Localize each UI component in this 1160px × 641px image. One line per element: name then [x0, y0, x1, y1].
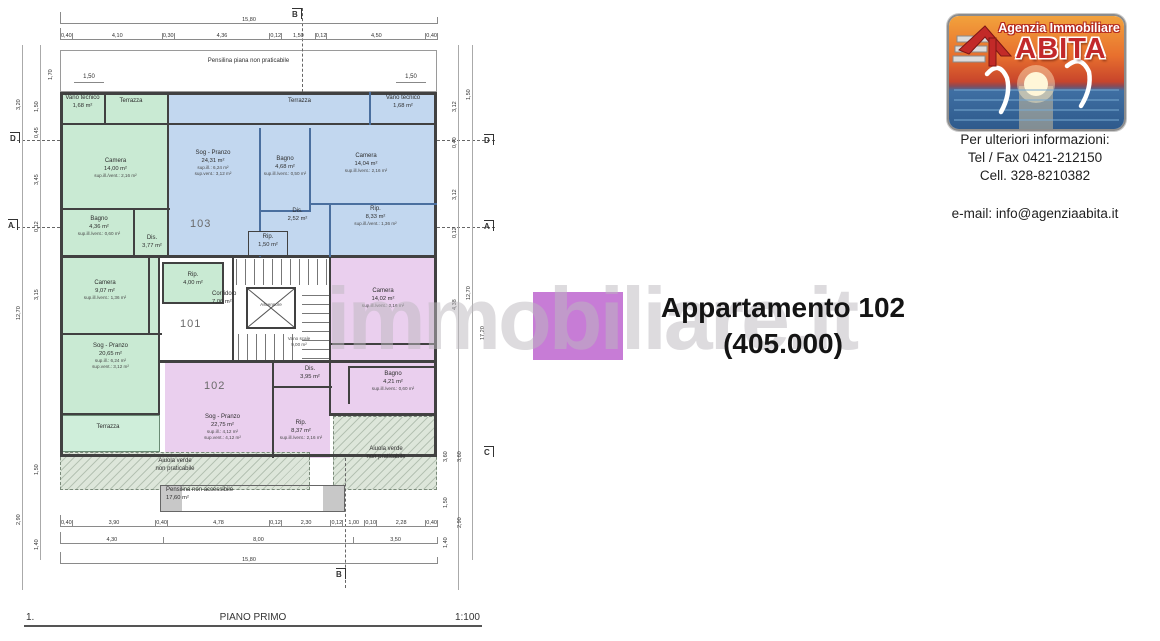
room-bagno-103: Bagno4,68 m²sup.ill./vent.: 0,50 m²: [260, 156, 310, 177]
room-camera2-101: Camera9,07 m²sup.ill./vent.: 1,36 m²: [64, 280, 146, 301]
room-terrazza-103: Terrazza: [262, 98, 337, 106]
apartment-number-102: 102: [204, 380, 225, 392]
dimension-row-top: 0,40 4,10 0,30 4,36 0,12 1,50 0,12 4,50 …: [60, 28, 438, 40]
room-soggiorno-102: Sog - Pranzo22,75 m²sup.ill.: 4,12 m²sup…: [170, 414, 275, 441]
room-dis-101: Dis.3,77 m²: [132, 235, 172, 250]
wall-segment: [104, 92, 106, 125]
dimension-label: 2,90: [457, 517, 463, 528]
dimension-label: 3,20: [16, 99, 22, 110]
room-vano-scale: Vano scale9,00 m²: [268, 336, 330, 348]
room-soggiorno-103: Sog - Pranzo24,31 m²sup.ill.: 6,24 m²sup…: [170, 150, 256, 177]
section-marker-d: D: [10, 132, 20, 143]
listing-price: (405.000): [628, 326, 938, 362]
dimension-label: 1,50: [34, 101, 40, 112]
listing-title: Appartamento 102: [628, 290, 938, 326]
room-soggiorno-101: Sog - Pranzo20,65 m²sup.ill.: 6,24 m²sup…: [58, 343, 163, 370]
wall-segment: [60, 413, 160, 415]
label-pensilina-top: Pensilina piana non praticabile: [60, 58, 437, 66]
room-camera-101: Camera14,00 m²sup.ill./vent.: 2,16 m²: [68, 158, 163, 179]
room-terrazza-101-top: Terrazza: [100, 98, 162, 106]
wall-segment: [60, 333, 162, 335]
wall-segment: [329, 203, 331, 257]
contact-heading: Per ulteriori informazioni:: [925, 131, 1145, 149]
wall-segment: [60, 123, 437, 125]
drawing-title: PIANO PRIMO: [24, 612, 482, 623]
wall-segment: [167, 92, 169, 257]
wall-segment: [232, 257, 234, 362]
label-pensilina-bottom: Pensilina non accessibile17,60 m²: [166, 487, 286, 502]
sheet-number: 1.: [26, 612, 34, 623]
dimension-label: 3,60: [457, 451, 463, 462]
dimension-label: 0,45: [34, 127, 40, 138]
dimension-label: 1,40: [34, 539, 40, 550]
room-ascensore: Ascensore: [242, 302, 300, 308]
section-marker-a: A: [8, 219, 18, 230]
real-estate-listing-page: D A D A C B B Vano tecnico1,68 m² Terraz…: [0, 0, 1160, 641]
contact-phone: Tel / Fax 0421-212150: [925, 149, 1145, 167]
dimension-label: 1,50: [34, 464, 40, 475]
canopy-top: [60, 50, 437, 92]
room-bagno-101: Bagno4,36 m²sup.ill./vent.: 0,60 m²: [63, 216, 135, 237]
dimension-overall-bottom: 15,80: [60, 552, 438, 564]
room-rip-103: Rip.8,33 m²sup.ill./vent.: 1,36 m²: [333, 206, 418, 227]
room-bagno-102: Bagno4,21 m²sup.ill./vent.: 0,60 m²: [352, 371, 434, 392]
dimension-label: 3,45: [34, 174, 40, 185]
wall-segment: [148, 257, 150, 335]
dimension-label: 3,15: [34, 289, 40, 300]
listing-label: Appartamento 102 (405.000): [628, 290, 938, 362]
room-vano-tecnico-103: Vano tecnico1,68 m²: [374, 95, 432, 110]
dimension-label: 3,60: [443, 451, 449, 462]
dimension-label: 3,12: [452, 101, 458, 112]
dimension-label: 1,50: [396, 74, 426, 83]
dimension-label: 1,50: [466, 89, 472, 100]
section-marker-a: A: [484, 220, 494, 231]
room-rip2-103: Rip.1,50 m²: [246, 234, 290, 249]
dimension-label: 1,50: [74, 74, 104, 83]
room-rip-101: Rip.4,00 m²: [164, 272, 222, 287]
dimension-label: 1,40: [443, 537, 449, 548]
dimension-line: [22, 45, 23, 590]
dimension-label: 3,12: [452, 189, 458, 200]
dimension-label: 2,90: [16, 514, 22, 525]
wall-segment: [369, 92, 371, 125]
dimension-overall-top: 15,80: [60, 12, 438, 24]
drawing-title-block: 1. PIANO PRIMO 1:100: [24, 612, 482, 627]
dimension-label: 1,50: [443, 497, 449, 508]
wall-segment: [60, 208, 170, 210]
dimension-label: 0,40: [452, 137, 458, 148]
label-aiuola-left: Aiuola verdenon praticabile: [120, 458, 230, 474]
label-aiuola-right: Aiuola verdenon praticabile: [343, 446, 429, 462]
drawing-scale: 1:100: [455, 612, 480, 623]
apartment-number-103: 103: [190, 218, 211, 230]
room-dis-103: Dis.2,52 m²: [275, 208, 320, 223]
dimension-label: 0,12: [452, 227, 458, 238]
dimension-label: 0,12: [34, 221, 40, 232]
section-marker-b: B: [336, 568, 346, 579]
contact-email: e-mail: info@agenziaabita.it: [925, 205, 1145, 223]
section-marker-c: C: [484, 446, 494, 457]
canopy-pillar: [323, 486, 344, 511]
section-marker-d: D: [484, 134, 494, 145]
agency-name-line2: ABITA: [1002, 33, 1120, 66]
dimension-line: [40, 45, 41, 560]
contact-mobile: Cell. 328-8210382: [925, 167, 1145, 185]
dimension-row-bottom-1: 0,40 3,90 0,40 4,78 0,12 2,30 0,12 1,00 …: [60, 515, 438, 527]
dimension-label: 12,70: [16, 306, 22, 320]
room-camera-103: Camera14,04 m²sup.ill./vent.: 2,16 m²: [318, 153, 414, 174]
contact-info: Per ulteriori informazioni: Tel / Fax 04…: [925, 131, 1145, 223]
dimension-row-bottom-2: 4,30 8,00 3,50: [60, 532, 438, 544]
wall-segment: [272, 386, 332, 388]
room-vano-tecnico-101: Vano tecnico1,68 m²: [61, 95, 104, 110]
room-rip-102: Rip.8,37 m²sup.ill./vent.: 2,16 m²: [272, 420, 330, 441]
wall-segment: [158, 257, 160, 415]
room-terrazza-101-bottom: Terrazza: [72, 424, 144, 432]
wall-segment: [348, 366, 350, 404]
wall-segment: [272, 362, 274, 458]
dimension-label: 1,70: [48, 69, 54, 80]
wall-segment: [329, 413, 437, 416]
apartment-number-101: 101: [180, 318, 201, 330]
